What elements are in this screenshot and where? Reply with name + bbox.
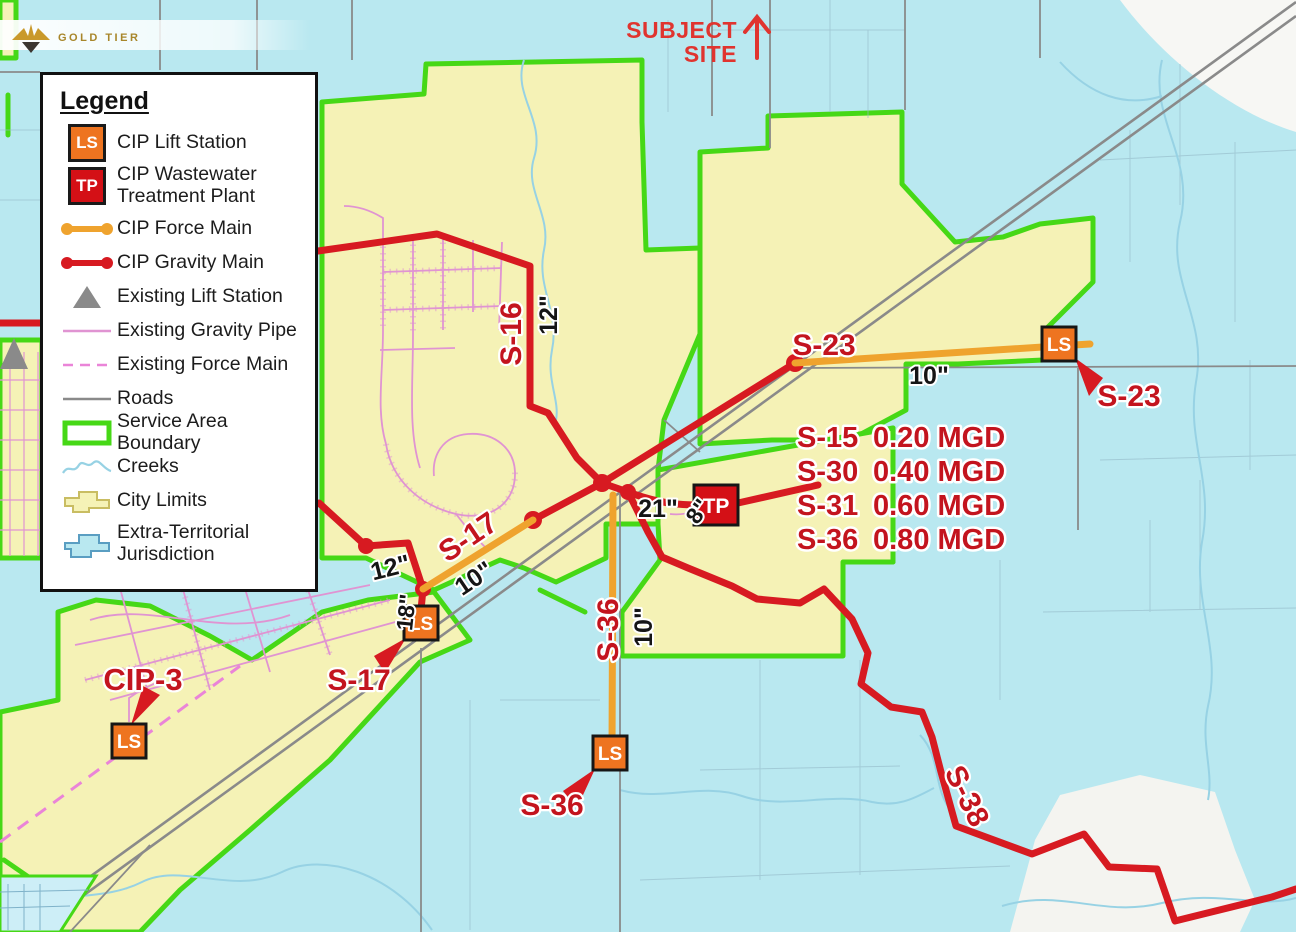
legend-item-label: CIP Lift Station (117, 132, 305, 154)
ls-marker-text: LS (1047, 335, 1071, 356)
legend-item-existing-lift-station: Existing Lift Station (57, 280, 305, 314)
label-s17-station: S-17 (327, 664, 390, 697)
flow-row-value: 0.40 MGD (873, 456, 1005, 488)
legend-item-label: CIP Gravity Main (117, 252, 305, 274)
legend-title: Legend (60, 87, 305, 116)
cip-treatment-plant-icon: TP (68, 167, 106, 205)
label-s16: S-16 (495, 302, 528, 365)
lift-station-marker-s36: LS (593, 736, 627, 770)
flow-row-id: S-15 (797, 422, 858, 454)
label-cip3: CIP-3 (103, 662, 182, 697)
legend-item-cip-gravity-main: CIP Gravity Main (57, 246, 305, 280)
legend-item-label: City Limits (117, 490, 305, 512)
cip-force-main-icon (59, 221, 115, 237)
subject-site-line1: SUBJECT (626, 17, 737, 43)
legend-item-cip-lift-station: LS CIP Lift Station (57, 126, 305, 160)
label-s17-pipe18: 18" (391, 593, 421, 632)
legend-panel: Legend LS CIP Lift Station TP CIP Wastew… (40, 72, 318, 592)
utility-map-page: LS LS LS LS TP S-16 12" S-23 10" S-23 S-… (0, 0, 1296, 932)
legend-item-existing-gravity-pipe: Existing Gravity Pipe (57, 314, 305, 348)
legend-item-city-limits: City Limits (57, 484, 305, 518)
flow-row-value: 0.80 MGD (873, 524, 1005, 556)
creeks-icon (59, 455, 115, 479)
flow-row-id: S-30 (797, 456, 858, 488)
lift-station-marker-cip3: LS (112, 724, 146, 758)
existing-force-main-icon (59, 360, 115, 370)
legend-item-creeks: Creeks (57, 450, 305, 484)
existing-lift-station-icon (59, 284, 115, 310)
etj-icon (59, 527, 115, 561)
label-tp-pipe21: 21" (638, 495, 678, 523)
lift-station-marker-s23: LS (1042, 327, 1076, 361)
cip-gravity-main-icon (59, 255, 115, 271)
city-limits-icon (59, 486, 115, 516)
legend-item-label: Existing Gravity Pipe (117, 320, 305, 342)
legend-item-cip-treatment-plant: TP CIP Wastewater Treatment Plant (57, 160, 305, 212)
legend-item-label: Service Area Boundary (117, 411, 305, 455)
label-s36-pipe: 10" (630, 607, 658, 647)
legend-item-label: CIP Force Main (117, 218, 305, 240)
legend-item-service-area-boundary: Service Area Boundary (57, 416, 305, 450)
watermark-brand-text: GOLD TIER (58, 32, 140, 44)
legend-item-label: Creeks (117, 456, 305, 478)
flow-row-value: 0.20 MGD (873, 422, 1005, 454)
existing-gravity-pipe-icon (59, 326, 115, 336)
gold-tier-watermark: GOLD TIER (0, 20, 310, 53)
label-s36: S-36 (592, 598, 625, 661)
subject-site-line2: SITE (684, 41, 737, 67)
legend-item-label: Roads (117, 388, 305, 410)
ls-marker-text: LS (598, 744, 622, 765)
legend-item-etj: Extra-Territorial Jurisdiction (57, 518, 305, 570)
cip-lift-station-icon: LS (68, 124, 106, 162)
label-s23: S-23 (792, 329, 855, 362)
legend-item-label: Extra-Territorial Jurisdiction (117, 522, 305, 566)
label-s36-station: S-36 (520, 789, 583, 822)
flow-row-id: S-31 (797, 490, 858, 522)
roads-icon (59, 394, 115, 404)
legend-item-label: CIP Wastewater Treatment Plant (117, 164, 305, 208)
label-s16-pipe: 12" (535, 295, 563, 335)
legend-item-label: Existing Force Main (117, 354, 305, 376)
ls-marker-text: LS (117, 732, 141, 753)
label-s23-station: S-23 (1097, 380, 1160, 413)
flow-row-id: S-36 (797, 524, 858, 556)
flow-row-value: 0.60 MGD (873, 490, 1005, 522)
legend-item-existing-force-main: Existing Force Main (57, 348, 305, 382)
legend-item-cip-force-main: CIP Force Main (57, 212, 305, 246)
service-area-boundary-icon (59, 418, 115, 448)
legend-item-label: Existing Lift Station (117, 286, 305, 308)
label-s23-pipe: 10" (909, 362, 949, 390)
